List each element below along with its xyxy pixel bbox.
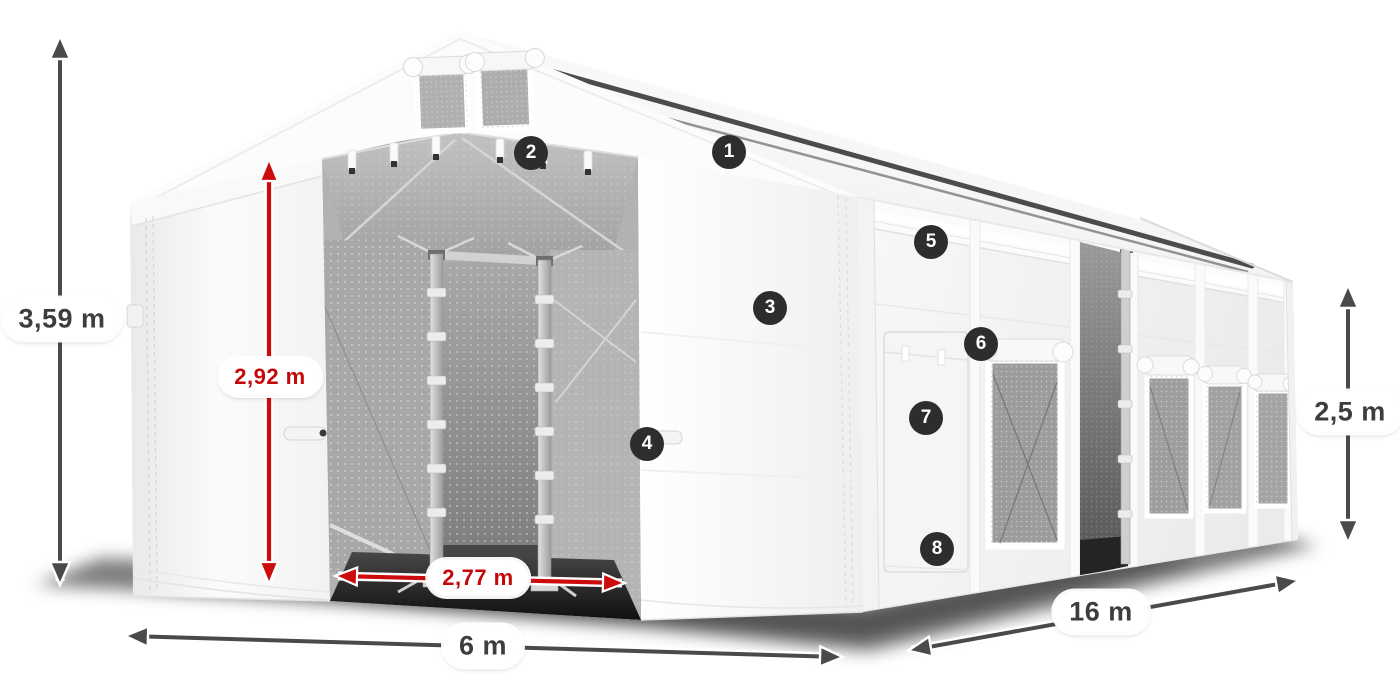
- callout-badge-1: 1: [712, 135, 746, 169]
- callout-badge-5: 5: [914, 225, 948, 259]
- side-window-far-1: [1137, 356, 1199, 516]
- door-handle-left: [284, 427, 327, 440]
- dimension-label-front-width: 6 m: [444, 626, 522, 667]
- callout-badge-6: 6: [964, 327, 998, 361]
- dimension-label-entrance-width: 2,77 m: [428, 560, 528, 596]
- callout-badge-4: 4: [630, 427, 664, 461]
- tent-dimension-diagram: 3,59 m 2,92 m 2,77 m 6 m 16 m 2,5 m 1 2 …: [0, 0, 1400, 700]
- dimension-label-total-height: 3,59 m: [3, 299, 120, 340]
- tent-interior: [318, 128, 646, 628]
- front-door-right-leaf: [638, 157, 863, 620]
- side-window-near: [977, 339, 1073, 546]
- dimension-label-side-height: 2,5 m: [1299, 392, 1400, 433]
- dimension-label-side-length: 16 m: [1054, 592, 1148, 633]
- side-window-far-2: [1198, 366, 1252, 511]
- callout-badge-3: 3: [753, 291, 787, 325]
- callout-badge-8: 8: [920, 532, 954, 566]
- tent-illustration: [0, 0, 1400, 700]
- dimension-label-clearance-height: 2,92 m: [220, 359, 320, 395]
- callout-badge-7: 7: [909, 401, 943, 435]
- callout-badge-2: 2: [514, 136, 548, 170]
